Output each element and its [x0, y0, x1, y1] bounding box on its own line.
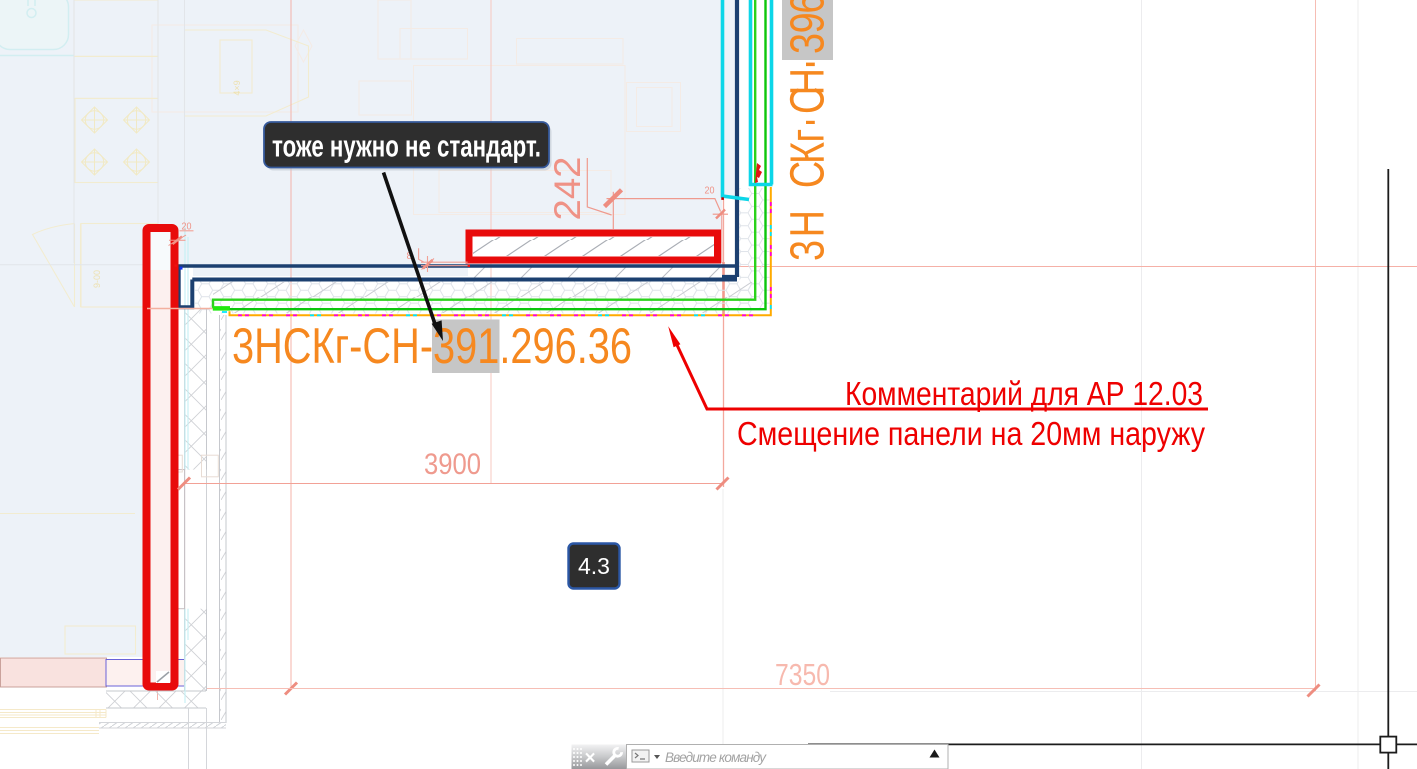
svg-text:3НСКг-СН-391.296.36: 3НСКг-СН-391.296.36 [232, 318, 632, 374]
svg-text:Комментарий для АР 12.03: Комментарий для АР 12.03 [845, 375, 1203, 412]
svg-text:20: 20 [182, 221, 192, 233]
svg-text:3900: 3900 [424, 448, 481, 481]
svg-text:4.3: 4.3 [578, 553, 610, 579]
svg-text:Смещение панели на 20мм наружу: Смещение панели на 20мм наружу [737, 415, 1205, 452]
svg-text:тоже нужно не стандарт.: тоже нужно не стандарт. [272, 129, 541, 164]
svg-text:4×9: 4×9 [232, 80, 242, 95]
svg-text:×: × [585, 748, 596, 769]
svg-text:3НСКгСН396: 3НСКгСН396 [781, 0, 835, 261]
svg-text:7350: 7350 [775, 657, 830, 692]
svg-text:20: 20 [705, 185, 715, 197]
svg-text:9-00: 9-00 [92, 270, 102, 288]
svg-text:242: 242 [547, 157, 588, 221]
svg-text:Введите команду: Введите команду [665, 750, 767, 765]
